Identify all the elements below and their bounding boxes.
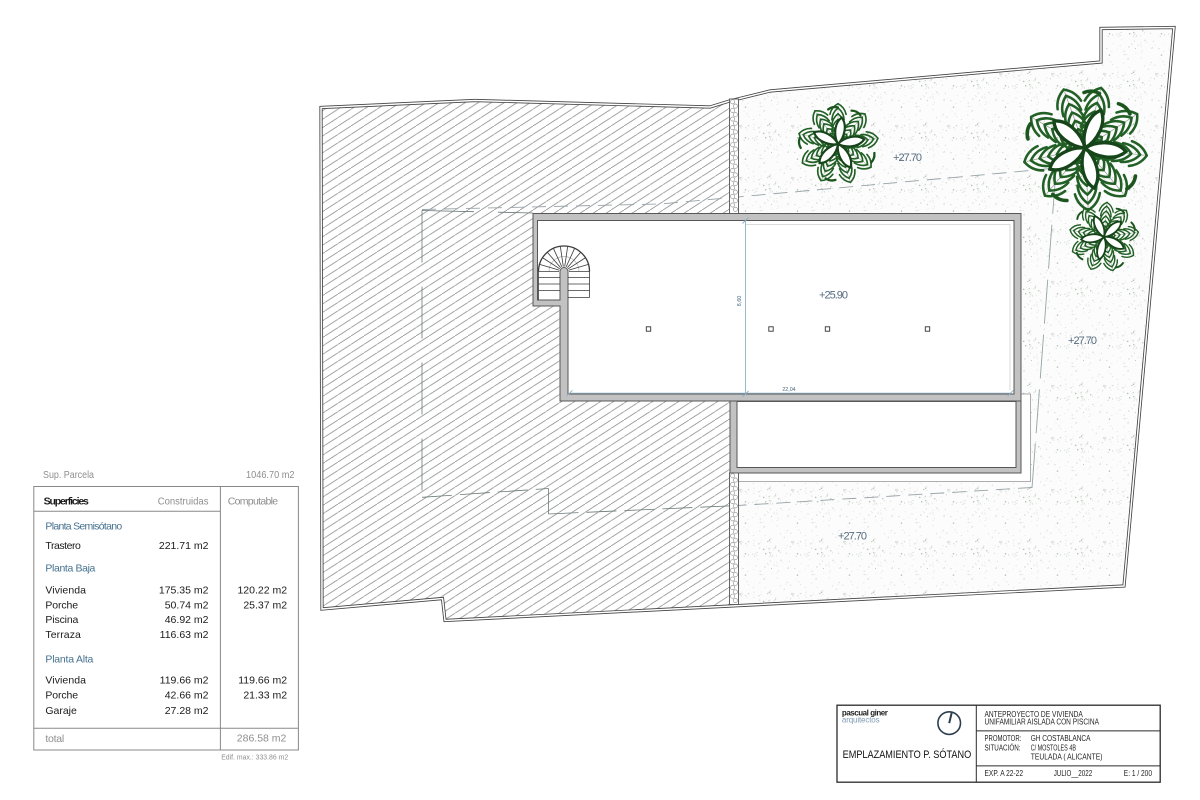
svg-text:Sup. Parcela: Sup. Parcela (43, 469, 94, 481)
svg-text:50.74 m2: 50.74 m2 (165, 599, 209, 611)
svg-text:JULIO__2022: JULIO__2022 (1054, 769, 1093, 778)
svg-text:UNIFAMILIAR AISLADA CON PISCIN: UNIFAMILIAR AISLADA CON PISCINA (985, 718, 1100, 727)
svg-text:Planta Baja: Planta Baja (45, 563, 95, 575)
svg-text:+25.90: +25.90 (819, 290, 848, 302)
svg-text:119.66 m2: 119.66 m2 (160, 675, 209, 687)
svg-text:GH COSTABLANCA: GH COSTABLANCA (1031, 734, 1091, 743)
svg-text:Terraza: Terraza (45, 629, 81, 641)
svg-text:27.28 m2: 27.28 m2 (165, 705, 209, 717)
svg-text:SITUACIÓN:: SITUACIÓN: (985, 743, 1021, 752)
svg-text:Edif. max.: 333.86 m2: Edif. max.: 333.86 m2 (221, 753, 288, 762)
svg-text:46.92 m2: 46.92 m2 (165, 614, 209, 626)
svg-text:arquitectos: arquitectos (842, 716, 880, 725)
svg-text:Computable: Computable (228, 496, 279, 508)
svg-text:286.58 m2: 286.58 m2 (237, 733, 287, 745)
svg-text:1046.70 m2: 1046.70 m2 (246, 469, 295, 481)
svg-text:Vivienda: Vivienda (45, 584, 86, 596)
svg-text:Vivienda: Vivienda (45, 675, 86, 687)
svg-text:+27.70: +27.70 (893, 152, 922, 164)
svg-text:EXP. A 22-22: EXP. A 22-22 (985, 769, 1024, 778)
svg-text:175.35 m2: 175.35 m2 (159, 584, 209, 596)
svg-text:Superficies: Superficies (44, 496, 89, 508)
svg-text:22,04: 22,04 (782, 387, 795, 393)
svg-text:Garaje: Garaje (45, 705, 77, 717)
svg-text:Planta Semisótano: Planta Semisótano (45, 521, 122, 533)
svg-text:21.33 m2: 21.33 m2 (243, 690, 287, 702)
svg-text:+27.70: +27.70 (1068, 335, 1097, 347)
svg-text:119.66 m2: 119.66 m2 (238, 675, 287, 687)
svg-text:120.22 m2: 120.22 m2 (237, 584, 287, 596)
svg-text:Construidas: Construidas (158, 496, 209, 508)
svg-text:total: total (45, 733, 64, 745)
svg-text:42.66 m2: 42.66 m2 (165, 690, 209, 702)
svg-text:116.63 m2: 116.63 m2 (160, 629, 209, 641)
svg-text:C/ MOSTOLES 4B: C/ MOSTOLES 4B (1031, 743, 1076, 752)
svg-text:221.71 m2: 221.71 m2 (159, 540, 209, 552)
svg-text:E: 1 / 200: E: 1 / 200 (1124, 769, 1153, 778)
svg-text:PROMOTOR:: PROMOTOR: (985, 734, 1022, 743)
svg-text:25.37 m2: 25.37 m2 (243, 599, 287, 611)
svg-text:Trastero: Trastero (45, 540, 81, 552)
svg-text:Planta Alta: Planta Alta (45, 654, 93, 666)
svg-text:+27.70: +27.70 (838, 531, 867, 543)
svg-text:Piscina: Piscina (45, 614, 78, 626)
svg-text:Porche: Porche (45, 599, 78, 611)
svg-text:TEULADA ( ALICANTE): TEULADA ( ALICANTE) (1031, 753, 1103, 762)
svg-text:EMPLAZAMIENTO P. SÓTANO: EMPLAZAMIENTO P. SÓTANO (843, 748, 972, 761)
svg-text:8,60: 8,60 (737, 296, 743, 307)
svg-text:Porche: Porche (45, 690, 78, 702)
